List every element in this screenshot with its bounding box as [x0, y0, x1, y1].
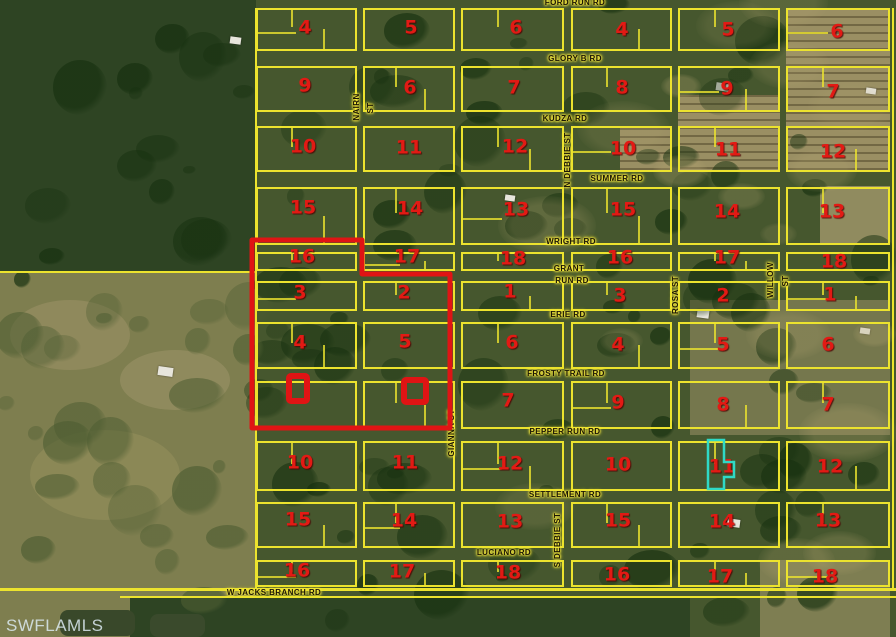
block-number: 11 — [709, 458, 735, 477]
block-number: 6 — [821, 336, 834, 355]
block-number: 6 — [509, 19, 522, 38]
block-number: 6 — [403, 79, 416, 98]
block-number: 9 — [720, 80, 733, 99]
block-number: 11 — [715, 141, 741, 160]
block-number: 5 — [716, 336, 729, 355]
block-number: 18 — [495, 564, 521, 583]
block-number: 5 — [721, 21, 734, 40]
block-number: 15 — [610, 201, 636, 220]
block-number: 15 — [290, 199, 316, 218]
block-number: 8 — [615, 79, 628, 98]
block-number: 2 — [716, 287, 729, 306]
block-number: 18 — [812, 568, 838, 587]
block-number: 7 — [821, 396, 834, 415]
parcel-map[interactable]: FORD RUN RDGLORY B RDKUDZA RDSUMMER RDWR… — [0, 0, 896, 637]
block-number: 13 — [503, 201, 529, 220]
block-number: 4 — [615, 21, 628, 40]
block-number: 14 — [391, 512, 417, 531]
block-number: 15 — [285, 511, 311, 530]
block-number: 11 — [392, 454, 418, 473]
block-number: 4 — [298, 19, 311, 38]
block-number: 12 — [817, 458, 843, 477]
block-number: 13 — [497, 513, 523, 532]
block-number: 7 — [501, 392, 514, 411]
block-number: 4 — [611, 336, 624, 355]
block-number: 4 — [293, 334, 306, 353]
block-number: 12 — [497, 455, 523, 474]
block-number: 5 — [398, 333, 411, 352]
block-number: 18 — [821, 253, 847, 272]
block-number: 16 — [607, 249, 633, 268]
block-number: 9 — [611, 394, 624, 413]
block-number: 1 — [823, 286, 836, 305]
block-number: 12 — [502, 138, 528, 157]
block-number: 17 — [394, 248, 420, 267]
block-number: 9 — [298, 77, 311, 96]
block-number: 7 — [826, 83, 839, 102]
block-numbers: 4564569678971011121011121514131514131617… — [0, 0, 896, 637]
block-number: 14 — [397, 200, 423, 219]
block-number: 10 — [290, 138, 316, 157]
block-number: 7 — [507, 79, 520, 98]
block-number: 12 — [820, 143, 846, 162]
block-number: 13 — [815, 512, 841, 531]
block-number: 14 — [714, 203, 740, 222]
block-number: 5 — [404, 19, 417, 38]
block-number: 15 — [605, 512, 631, 531]
block-number: 10 — [287, 454, 313, 473]
block-number: 6 — [505, 334, 518, 353]
block-number: 10 — [605, 456, 631, 475]
block-number: 17 — [707, 568, 733, 587]
block-number: 10 — [610, 140, 636, 159]
block-number: 17 — [389, 563, 415, 582]
block-number: 8 — [716, 396, 729, 415]
block-number: 11 — [396, 139, 422, 158]
block-number: 6 — [830, 23, 843, 42]
watermark: SWFLAMLS — [6, 616, 104, 636]
block-number: 1 — [503, 283, 516, 302]
block-number: 2 — [397, 284, 410, 303]
block-number: 16 — [604, 566, 630, 585]
block-number: 13 — [819, 203, 845, 222]
block-number: 3 — [293, 284, 306, 303]
block-number: 16 — [289, 248, 315, 267]
block-number: 14 — [709, 513, 735, 532]
block-number: 18 — [500, 250, 526, 269]
block-number: 16 — [284, 562, 310, 581]
block-number: 17 — [714, 249, 740, 268]
block-number: 3 — [613, 287, 626, 306]
